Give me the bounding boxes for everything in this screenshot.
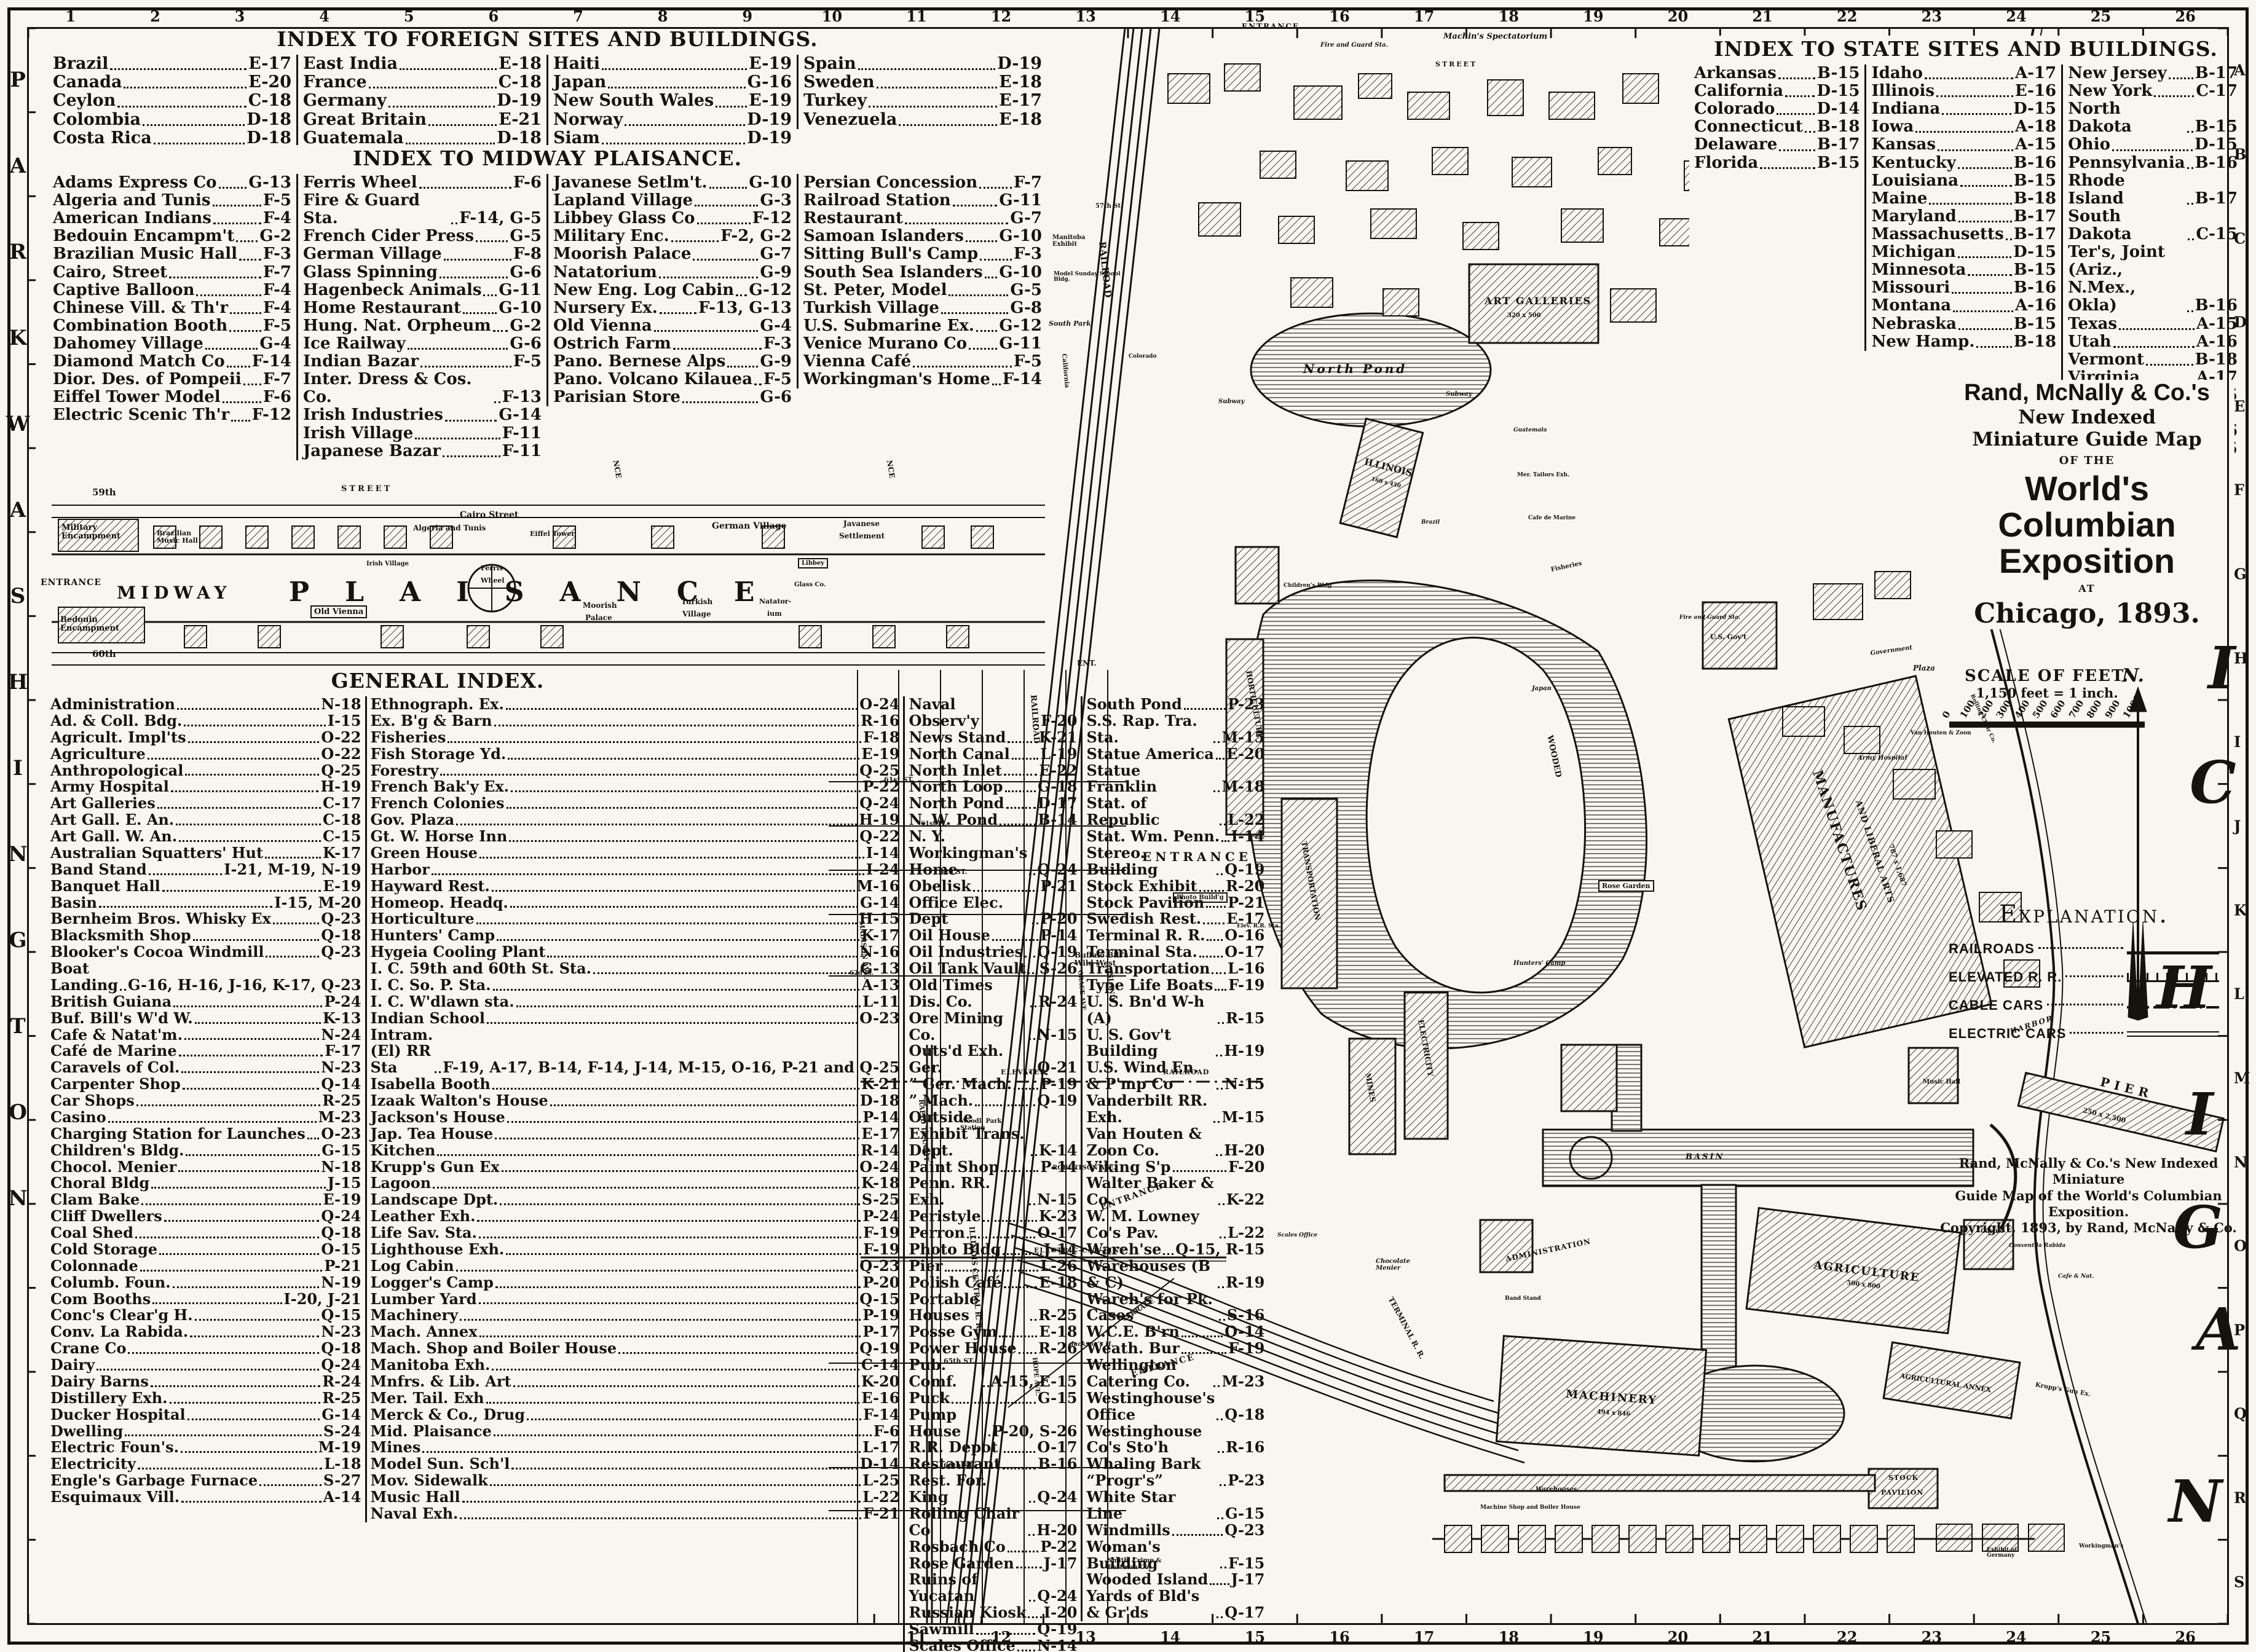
index-entry: CanadaE-20 xyxy=(53,73,291,92)
index-entry: Workingman's HomeF-14 xyxy=(803,371,1042,388)
entry-gridref: P-21 xyxy=(1040,878,1077,895)
entry-name: Eiffel Tower Model xyxy=(53,388,221,406)
ruler-top-number: 8 xyxy=(658,7,668,25)
entry-leader xyxy=(492,890,855,892)
index-entry: Dairy BarnsR-24 xyxy=(50,1374,361,1390)
entry-leader xyxy=(492,1369,859,1371)
entry-gridref: F-13, G-13 xyxy=(698,299,792,317)
index-entry: Rest. For. KingQ-24 xyxy=(909,1473,1077,1506)
entry-leader xyxy=(179,840,321,842)
entry-gridref: P-17 xyxy=(862,1324,899,1340)
copyright-block: Rand, McNally & Co.'s New Indexed Miniat… xyxy=(1936,1155,2241,1236)
entry-leader xyxy=(415,438,500,439)
index-entry: Blacksmith ShopQ-18 xyxy=(50,927,361,944)
entry-gridref: C-18 xyxy=(499,73,542,92)
index-entry: Captive BalloonF-4 xyxy=(53,281,291,299)
index-entry: ColombiaD-18 xyxy=(53,111,291,129)
entry-name: Engle's Garbage Furnace xyxy=(50,1473,258,1489)
entry-name: French Cider Press xyxy=(303,227,474,245)
ruler-right-letter: E xyxy=(2234,397,2245,415)
entry-leader xyxy=(140,1270,323,1272)
map-label: ELECTRICITY xyxy=(1416,1019,1435,1077)
entry-gridref: R-16 xyxy=(861,713,899,730)
map-label: Convent la Rabida xyxy=(2009,1243,2065,1249)
index-entry: Buf. Bill's W'd W.K-13 xyxy=(50,1010,361,1027)
entry-name: Anthropological xyxy=(50,763,183,779)
index-entry: Electric Foun's.M-19 xyxy=(50,1439,361,1456)
index-entry: MinnesotaB-15 xyxy=(1871,261,2056,279)
entry-gridref: R-15 xyxy=(1226,1010,1264,1027)
entry-name: Rosbach Co xyxy=(909,1539,1005,1556)
index-entry: Dior. Des. of PompeiiF-7 xyxy=(53,371,291,388)
entry-name: Idaho xyxy=(1871,65,1922,82)
index-entry: CaliforniaD-15 xyxy=(1694,82,1860,100)
index-entry: DwellingS-24 xyxy=(50,1423,361,1440)
index-entry: Combination BoothF-5 xyxy=(53,317,291,335)
index-entry: Chinese Vill. & Th'rF-4 xyxy=(53,299,291,317)
entry-name: North Pond xyxy=(909,795,1004,812)
entry-gridref: E-17 xyxy=(999,92,1042,110)
map-label: Warehouses xyxy=(1536,1486,1577,1493)
entry-gridref: O-24 xyxy=(859,1159,899,1176)
entry-name: Dior. Des. of Pompeii xyxy=(53,371,242,388)
entry-gridref: I-15 xyxy=(328,713,361,730)
index-entry: Lighthouse Exh.F-19 xyxy=(371,1241,900,1258)
entry-gridref: I-20, J-21 xyxy=(284,1291,361,1308)
entry-name: Sweden xyxy=(803,73,875,92)
entry-gridref: S-16 xyxy=(1227,1307,1265,1324)
general-index-title: GENERAL INDEX. xyxy=(47,669,829,693)
entry-gridref: J-14 xyxy=(1044,1241,1078,1258)
index-entry: WindmillsQ-23 xyxy=(1086,1522,1264,1539)
index-entry: New South WalesE-19 xyxy=(553,92,792,110)
entry-gridref: A-16 xyxy=(2015,297,2056,315)
entry-gridref: D-19 xyxy=(747,111,792,129)
entry-gridref: D-15 xyxy=(2013,100,2056,118)
entry-gridref: Q-23 xyxy=(321,944,361,961)
entry-name: Band Stand xyxy=(50,862,147,878)
index-entry: Leather Exh.P-24 xyxy=(371,1208,900,1225)
entry-name: New Hamp. xyxy=(1871,333,1974,351)
entry-leader xyxy=(976,330,997,332)
entry-name: Libbey Glass Co xyxy=(553,210,695,227)
entry-leader xyxy=(369,87,497,88)
entry-gridref: B-18 xyxy=(2014,190,2056,208)
entry-name: Stereo. Building xyxy=(1086,845,1215,878)
entry-gridref: E-16 xyxy=(2015,82,2056,100)
index-entry: Pano. Volcano KilaueaF-5 xyxy=(553,371,792,388)
entry-gridref: P-20, S-26 xyxy=(992,1423,1077,1440)
entry-gridref: M-15 xyxy=(1221,1109,1264,1126)
entry-gridref: C-18 xyxy=(248,92,291,110)
general-index-col-2: Ethnograph. Ex.O-24Ex. B'g & BarnR-16Fis… xyxy=(365,696,904,1522)
entry-leader xyxy=(135,1237,319,1238)
entry-name: Vermont xyxy=(2068,351,2144,369)
entry-leader xyxy=(1216,758,1225,760)
entry-name: ” Mach. xyxy=(909,1093,973,1109)
ruler-bottom-number: 12 xyxy=(991,1628,1011,1646)
entry-name: Portable Houses xyxy=(909,1291,1028,1324)
entry-leader xyxy=(1172,1534,1223,1536)
index-entry: Type Life BoatsF-19 xyxy=(1086,977,1264,994)
index-entry: Warehouses (B & C)R-19 xyxy=(1086,1258,1264,1291)
entry-leader xyxy=(479,1302,858,1304)
entry-name: Mines xyxy=(371,1439,421,1456)
map-label: Japan xyxy=(1532,685,1552,692)
entry-name: Log Cabin xyxy=(371,1258,454,1275)
index-entry: Lumber YardQ-15 xyxy=(371,1291,900,1308)
entry-name: Mach. Annex xyxy=(371,1324,478,1340)
map-label: 250 x 2,500 xyxy=(2082,1106,2127,1125)
map-label: 160 x 450 xyxy=(1371,476,1402,490)
entry-leader xyxy=(1017,1650,1035,1651)
entry-gridref: E-17 xyxy=(248,55,291,73)
entry-gridref: R-24 xyxy=(1038,994,1077,1010)
ruler-right-letter: C xyxy=(2234,229,2246,247)
index-entry: Walter Baker & Co.K-22 xyxy=(1086,1175,1264,1208)
index-entry: Penn. RR. Exh.N-15 xyxy=(909,1175,1077,1208)
entry-gridref: Q-24 xyxy=(1037,862,1077,878)
map-label: AGRICULTURAL ANNEX xyxy=(1899,1372,1992,1394)
entry-leader xyxy=(227,366,250,368)
index-entry: Lapland VillageG-3 xyxy=(553,192,792,210)
index-entry: Mov. SidewalkL-25 xyxy=(371,1473,900,1489)
entry-gridref: G-6 xyxy=(510,264,542,281)
title-line: Rand, McNally & Co.'s xyxy=(1939,380,2234,406)
entry-name: French Colonies xyxy=(371,795,505,812)
map-label: Army Hospital xyxy=(1858,755,1907,761)
entry-name: New Eng. Log Cabin xyxy=(553,281,734,299)
map-label: Javanese xyxy=(843,519,880,528)
entry-leader xyxy=(490,1484,861,1486)
entry-name: French Bak'y Ex. xyxy=(371,779,509,795)
entry-leader xyxy=(117,106,246,108)
entry-leader xyxy=(660,312,696,314)
entry-gridref: F-4 xyxy=(263,210,291,227)
entry-gridref: E-20 xyxy=(248,73,291,92)
entry-leader xyxy=(506,708,858,710)
entry-gridref: Q-18 xyxy=(321,927,361,944)
legend-row: CABLE CARS xyxy=(1949,997,2219,1013)
entry-gridref: G-11 xyxy=(499,281,542,299)
entry-name: Model Sun. Sch'l xyxy=(371,1456,510,1473)
index-entry: French Bak'y Ex.P-22 xyxy=(371,779,900,795)
entry-leader xyxy=(983,1220,1037,1222)
entry-leader xyxy=(1915,131,2013,133)
entry-name: Ad. & Coll. Bdg. xyxy=(50,713,182,730)
entry-leader xyxy=(213,205,261,206)
entry-gridref: B-17 xyxy=(2195,190,2238,208)
entry-leader xyxy=(159,1253,319,1255)
entry-name: Adams Express Co xyxy=(53,174,217,192)
entry-gridref: G-6 xyxy=(760,388,792,406)
legend-label: CABLE CARS xyxy=(1949,997,2043,1013)
index-entry: Choral BldgJ-15 xyxy=(50,1175,361,1192)
entry-name: Pano. Volcano Kilauea xyxy=(553,371,752,388)
legend-leader xyxy=(2047,1004,2123,1005)
ruler-top-number: 15 xyxy=(1245,7,1265,25)
entry-name: White Star Line xyxy=(1086,1489,1215,1522)
entry-leader xyxy=(141,1203,321,1205)
entry-name: U.S. Wind En. & P'mp Co xyxy=(1086,1060,1215,1093)
entry-name: Rhode Island xyxy=(2068,172,2185,208)
entry-leader xyxy=(162,890,321,892)
index-entry: KentuckyB-16 xyxy=(1871,154,2056,172)
index-entry: Westinghouse Co's Sto'hR-16 xyxy=(1086,1423,1264,1457)
entry-name: Michigan xyxy=(1871,243,1955,261)
map-label: Model Sunday School Bldg. xyxy=(1054,272,1124,283)
map-label: Bedouin Encampment xyxy=(60,616,143,632)
copyright-line: Guide Map of the World's Columbian Expos… xyxy=(1936,1188,2241,1221)
index-entry: Whaling Bark “Progr's”P-23 xyxy=(1086,1456,1264,1489)
ruler-bottom-number: 11 xyxy=(906,1628,926,1646)
entry-gridref: L-16 xyxy=(1228,961,1264,977)
index-entry: Persian ConcessionF-7 xyxy=(803,174,1042,192)
entry-gridref: G-15 xyxy=(1038,1390,1077,1407)
entry-name: Algeria and Tunis xyxy=(53,192,211,210)
ruler-bottom-number: 17 xyxy=(1414,1628,1434,1646)
entry-gridref: P-14 xyxy=(862,1109,899,1126)
index-entry: Turkish VillageG-8 xyxy=(803,299,1042,317)
map-label: 494 x 846 xyxy=(1596,1409,1630,1418)
entry-leader xyxy=(1953,310,2013,312)
index-entry: White Star LineG-15 xyxy=(1086,1489,1264,1522)
general-index-col-3: Naval Observ'yF-20News StandK-21North Ca… xyxy=(903,696,1081,1652)
entry-gridref: M-16 xyxy=(857,878,900,895)
entry-name: Harbor xyxy=(371,862,430,878)
ruler-top-number: 12 xyxy=(991,7,1011,25)
legend-row: ELECTRIC CARS xyxy=(1949,1026,2219,1042)
entry-name: Stock Pavilion xyxy=(1086,895,1204,911)
entry-gridref: B-17 xyxy=(2014,208,2056,226)
entry-name: Whaling Bark “Progr's” xyxy=(1086,1456,1218,1489)
ruler-right-letter: L xyxy=(2234,985,2244,1003)
entry-leader xyxy=(196,294,261,296)
map-label: ENTRANCE xyxy=(41,578,101,588)
entry-leader xyxy=(716,106,747,108)
entry-name: Iowa xyxy=(1871,118,1914,136)
map-label: PAVILION xyxy=(1881,1489,1923,1497)
entry-name: Charging Station for Launches xyxy=(50,1126,306,1143)
index-entry: MichiganD-15 xyxy=(1871,243,2056,261)
entry-leader xyxy=(157,807,321,809)
entry-name: Manitoba Exh. xyxy=(371,1357,491,1374)
entry-leader xyxy=(1936,95,2013,97)
entry-name: Lighthouse Exh. xyxy=(371,1241,505,1258)
entry-gridref: E-17 xyxy=(861,1126,899,1143)
map-label: Algeria and Tunis xyxy=(413,524,486,532)
map-label: Machine Shop and Boiler House xyxy=(1480,1504,1580,1511)
entry-name: Pier xyxy=(909,1258,942,1275)
entry-name: Gt. W. Horse Inn xyxy=(371,828,508,845)
entry-name: South Dakota xyxy=(2068,208,2186,243)
index-entry: Logger's CampP-20 xyxy=(371,1275,900,1291)
entry-name: Dwelling xyxy=(50,1423,123,1440)
index-entry: Merck & Co., DrugF-14 xyxy=(371,1407,900,1423)
entry-gridref: A-15 xyxy=(2015,136,2056,154)
index-entry: Woman's BuildingF-15 xyxy=(1086,1539,1264,1572)
entry-name: Isabella Booth xyxy=(371,1076,491,1093)
entry-leader xyxy=(479,857,864,859)
entry-gridref: F-18 xyxy=(863,730,899,746)
entry-leader xyxy=(992,383,1001,385)
legend-row: RAILROADS xyxy=(1949,941,2219,957)
index-entry: Banquet HallE-19 xyxy=(50,878,361,895)
entry-leader xyxy=(1952,292,2011,294)
entry-leader xyxy=(1003,1468,1036,1469)
entry-name: Colonnade xyxy=(50,1258,138,1275)
ruler-top-number: 26 xyxy=(2175,7,2195,25)
entry-leader xyxy=(1029,1501,1035,1503)
index-entry: TransportationL-16 xyxy=(1086,961,1264,977)
ruler-bottom-number: 23 xyxy=(1922,1628,1942,1646)
map-label: ADMINISTRATION xyxy=(1505,1237,1591,1264)
entry-name: German Village xyxy=(303,245,442,263)
entry-leader xyxy=(507,807,858,809)
entry-leader xyxy=(1217,1616,1223,1618)
index-entry: Australian Squatters' HutK-17 xyxy=(50,845,361,862)
entry-leader xyxy=(1213,790,1220,792)
entry-gridref: B-14 xyxy=(1038,812,1077,828)
entry-name: Hagenbeck Animals xyxy=(303,281,481,299)
index-entry: I. C. So. P. Sta.A-13 xyxy=(371,977,900,994)
entry-name: Blooker's Cocoa Windmill xyxy=(50,944,264,961)
entry-name: Gov. Plaza xyxy=(371,812,455,828)
entry-name: Puck xyxy=(909,1390,950,1407)
scale-tick: 1000 xyxy=(2121,693,2144,720)
entry-name: Utah xyxy=(2068,333,2111,351)
entry-name: Stat. of Republic xyxy=(1086,795,1218,828)
entry-leader xyxy=(659,277,759,278)
index-entry: Mer. Tail. ExhE-16 xyxy=(371,1390,900,1407)
entry-leader xyxy=(400,68,497,70)
entry-gridref: A-14 xyxy=(323,1489,361,1506)
entry-gridref: P-20 xyxy=(862,1275,899,1291)
entry-gridref: C-15 xyxy=(323,828,361,845)
entry-leader xyxy=(877,87,998,88)
index-entry: U. S. Bn'd W-h (A)R-15 xyxy=(1086,994,1264,1027)
entry-gridref: K-17 xyxy=(323,845,361,862)
title-line: World's Columbian xyxy=(1939,471,2234,543)
entry-leader xyxy=(493,330,508,332)
entry-gridref: B-16 xyxy=(2195,297,2238,315)
entry-gridref: P-22 xyxy=(1040,1539,1077,1556)
entry-name: Delaware xyxy=(1694,136,1777,154)
entry-leader xyxy=(1217,1418,1223,1420)
entry-leader xyxy=(945,1270,1039,1272)
entry-name: Bedouin Encampm't xyxy=(53,227,234,245)
entry-name: Homeop. Headq. xyxy=(371,895,508,911)
index-entry: ForestryQ-25 xyxy=(371,763,900,779)
entry-leader xyxy=(1217,1517,1223,1519)
entry-gridref: Q-23 xyxy=(1225,1522,1264,1539)
entry-name: Venezuela xyxy=(803,111,897,129)
ruler-top-number: 24 xyxy=(2006,7,2026,25)
ruler-top-number: 25 xyxy=(2091,7,2111,25)
index-entry: SwedenE-18 xyxy=(803,73,1042,92)
entry-name: Wareh's for Pk. Cases xyxy=(1086,1291,1217,1324)
entry-leader xyxy=(176,824,321,825)
entry-name: Conv. La Rabida. xyxy=(50,1324,188,1340)
entry-leader xyxy=(433,1187,859,1189)
entry-leader xyxy=(2146,364,2193,366)
entry-gridref: C-15 xyxy=(2196,226,2238,243)
entry-name: Vanderbilt RR. Exh. xyxy=(1086,1093,1212,1126)
entry-name: Horticulture xyxy=(371,911,475,927)
ruler-right-letter: K xyxy=(2234,901,2247,919)
entry-gridref: O-17 xyxy=(1225,944,1264,961)
index-entry: VermontB-18 xyxy=(2068,351,2238,369)
entry-leader xyxy=(128,1352,319,1354)
entry-gridref: F-8 xyxy=(513,245,542,263)
entry-leader xyxy=(985,277,998,278)
entry-leader xyxy=(479,1335,861,1337)
entry-name: Penn. RR. Exh. xyxy=(909,1175,1027,1208)
entry-gridref: D-15 xyxy=(2195,136,2238,154)
entry-gridref: G-5 xyxy=(1010,281,1042,299)
entry-leader xyxy=(1207,939,1223,941)
ruler-bottom-number: 16 xyxy=(1329,1628,1349,1646)
index-entry: MinesL-17 xyxy=(371,1439,900,1456)
entry-gridref: F-19 xyxy=(863,1241,899,1258)
entry-leader xyxy=(151,1187,326,1189)
entry-leader xyxy=(1014,1088,1038,1090)
entry-name: Home Restaurant xyxy=(303,299,461,317)
entry-leader xyxy=(445,420,497,422)
ruler-right-letter: M xyxy=(2234,1069,2250,1087)
entry-gridref: N-23 xyxy=(321,1060,361,1076)
entry-gridref: P-23 xyxy=(1228,696,1264,713)
entry-leader xyxy=(190,1335,319,1337)
entry-leader xyxy=(1925,77,2013,79)
entry-gridref: P-24 xyxy=(862,1208,899,1225)
entry-gridref: Q-21 xyxy=(1037,1060,1077,1076)
entry-gridref: G-16 xyxy=(747,73,792,92)
scale-subtitle: 1,150 feet = 1 inch. xyxy=(1976,685,2118,701)
entry-name: Dairy xyxy=(50,1357,95,1374)
map-label: Government xyxy=(1870,644,1913,656)
entry-name: Wellington Catering Co. xyxy=(1086,1357,1212,1390)
entry-gridref: O-22 xyxy=(321,746,361,763)
explanation-title: Explanation. xyxy=(1949,900,2219,929)
map-label: 320 x 500 xyxy=(1507,312,1541,319)
index-entry: Dahomey VillageG-4 xyxy=(53,335,291,353)
entry-name: Chocol. Menier xyxy=(50,1159,176,1176)
map-label: Glass Co. xyxy=(794,581,826,588)
map-label: STREET xyxy=(1435,60,1477,68)
entry-gridref: Q-23 xyxy=(321,911,361,927)
entry-leader xyxy=(1012,758,1039,760)
entry-gridref: J-15 xyxy=(328,1175,361,1192)
entry-gridref: J-17 xyxy=(1231,1571,1265,1588)
index-entry: HorticultureH-15 xyxy=(371,911,900,927)
entry-leader xyxy=(108,1121,317,1123)
entry-name: Ex. B'g & Barn xyxy=(371,713,492,730)
entry-leader xyxy=(170,1402,321,1404)
entry-leader xyxy=(1206,906,1226,908)
state-index-title: INDEX TO STATE SITES AND BUILDINGS. xyxy=(1689,37,2242,61)
entry-gridref: Q-24 xyxy=(859,795,899,812)
index-entry: Ter's, Joint (Ariz., N.Mex., Okla)B-16 xyxy=(2068,243,2238,315)
index-entry: ” Mach.Q-19 xyxy=(909,1093,1077,1109)
entry-gridref: B-18 xyxy=(2195,351,2238,369)
entry-gridref: E-18 xyxy=(999,73,1042,92)
entry-gridref: Q-24 xyxy=(321,1208,361,1225)
map-label: Fisheries xyxy=(1550,560,1582,573)
entry-gridref: O-16 xyxy=(1225,927,1264,944)
entry-name: Arkansas xyxy=(1694,65,1777,82)
index-entry: Inter. Dress & Cos. Co.F-13 xyxy=(303,371,542,406)
